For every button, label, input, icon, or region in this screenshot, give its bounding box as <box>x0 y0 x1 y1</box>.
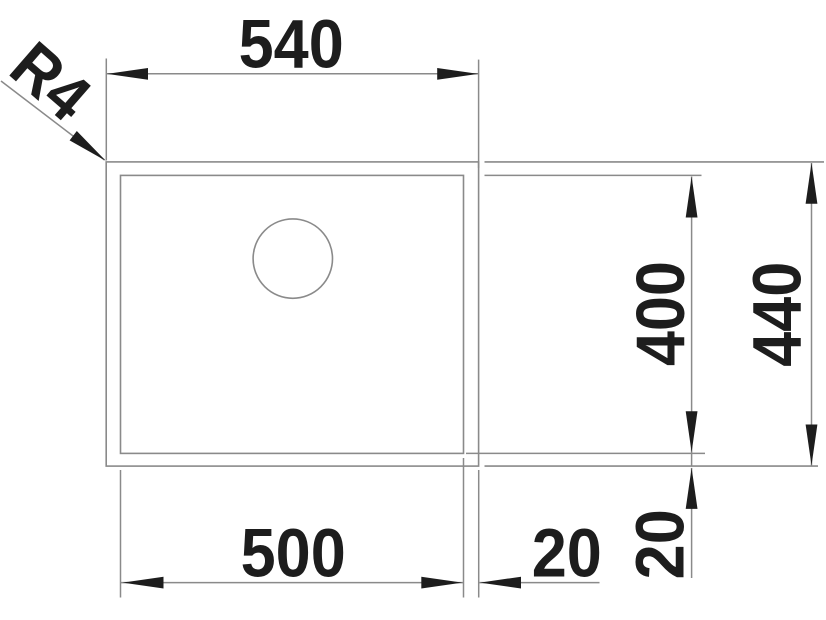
svg-text:400: 400 <box>621 261 698 366</box>
svg-text:500: 500 <box>241 514 346 591</box>
svg-text:440: 440 <box>738 262 815 367</box>
svg-text:20: 20 <box>532 514 602 591</box>
svg-text:20: 20 <box>621 509 698 579</box>
svg-text:540: 540 <box>239 5 344 82</box>
svg-text:R4: R4 <box>0 27 105 135</box>
